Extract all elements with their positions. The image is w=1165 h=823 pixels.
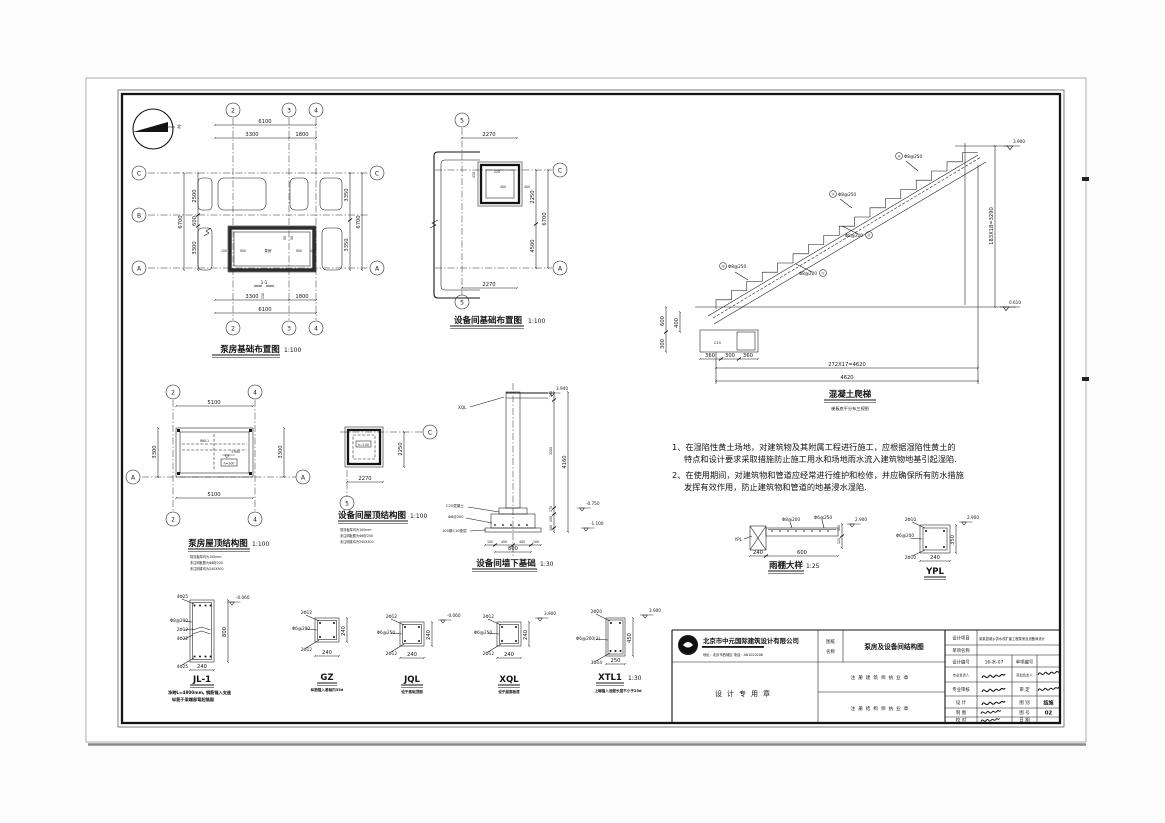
axis-label: B [137, 212, 141, 219]
level-label: -1.100 [590, 521, 604, 526]
rebar-label: 2Φ10 [905, 555, 917, 560]
dim-label: 4620 [840, 375, 853, 381]
field-label: 设计编号 [952, 659, 970, 666]
dim-label: 360 [743, 353, 753, 359]
slab-label: h=100 [358, 443, 369, 447]
level-label: 3.900 [1013, 139, 1025, 144]
dim-label: 150 [310, 249, 316, 253]
reg-stamp-label: 注册结构师执业章 [851, 705, 912, 712]
level-label: -0.750 [586, 501, 600, 506]
rebar-label: Φ6@250 [377, 630, 395, 635]
section-title: XTL1 [598, 673, 622, 683]
drawing-title: 雨棚大样 [769, 560, 804, 571]
dim-label: 272X17=4620 [828, 362, 866, 368]
dim-label: 6100 [258, 307, 271, 313]
material-label: Φ8@200 [448, 515, 464, 519]
note-line: 1、在湿陷性黄土场地，对建筑物及其附属工程进行施工，应根据湿陷性黄土的 [672, 442, 956, 452]
dim-label: 400 [674, 318, 680, 328]
dim-label: 300 [660, 339, 666, 349]
axis-label: 4 [253, 516, 257, 523]
material-label: 100厚C10垫层 [442, 528, 467, 533]
dim-label: 120 [494, 170, 500, 174]
dim-label: 600 [192, 216, 198, 226]
material-label: C20混凝土 [446, 503, 464, 508]
rebar-label: Φ6@200(2) [576, 636, 600, 641]
rebar-label: Φ8@200 [782, 517, 800, 522]
drawing-title: YPL [925, 567, 944, 577]
dim-label: 240 [426, 630, 432, 640]
level-label: -0.060 [447, 613, 461, 618]
registration-mark [1082, 377, 1089, 381]
axis-label: 2 [171, 516, 175, 523]
note-line: 未注明梁均为240X300 [340, 539, 373, 544]
company-subline: 地址：北京市西城区 电话：AN1020208 [703, 652, 763, 657]
dim-label: 2250 [530, 190, 536, 203]
note-line: 未注明板筋为Φ8@200 [340, 533, 373, 538]
dim-label: 240 [197, 664, 207, 670]
dim-label: 100 [837, 525, 841, 531]
level-label: 3.900 [544, 611, 556, 616]
dim-label: 400 [501, 540, 507, 544]
design-code: 16-水-07 [985, 659, 1004, 666]
field-label: 图 别 [1019, 699, 1029, 706]
dim-label: 240 [930, 555, 940, 561]
level-label: 3.940 [556, 386, 568, 391]
dim-label: 250 [611, 658, 621, 664]
field-label: 制 图 [956, 709, 967, 716]
dim-label: 150 [261, 293, 265, 299]
rebar-label: Φ8@250 [838, 192, 856, 197]
dim-label: 240 [322, 650, 332, 656]
dim-label: 2270 [482, 282, 495, 288]
rebar-label: 4Φ22 [177, 636, 189, 641]
dim-label: 240 [341, 626, 347, 636]
rebar-label: Φ8@250 [728, 264, 746, 269]
axis-label: C [558, 167, 562, 174]
slab-label: h=100 [224, 462, 235, 466]
callout-number: ① [821, 272, 824, 276]
dim-label: 450 [549, 516, 553, 522]
rebar-label: Φ8@250 [904, 154, 922, 159]
dim-label: 400 [519, 540, 525, 544]
field-label: 设计项目 [952, 635, 970, 642]
dim-label: 3300 [192, 241, 198, 254]
axis-label: 2 [231, 325, 235, 332]
drawing-subtitle: 梯板底平分布三视图 [831, 405, 869, 412]
field-label: 日 期 [1019, 718, 1030, 724]
dim-label: 3350 [344, 238, 350, 251]
drawing-title: 泵房屋顶结构图 [188, 538, 248, 549]
drawing-scale: 1:25 [806, 563, 820, 570]
axis-label: 2 [171, 389, 175, 396]
dim-label: 5100 [207, 492, 220, 498]
axis-label: 3 [287, 325, 291, 332]
dim-label: 100 [487, 540, 493, 544]
drawing-scale: 1:100 [410, 513, 427, 520]
dim-label: 360 [705, 353, 715, 359]
dim-label: 2500 [192, 189, 198, 202]
field-label: 单项编号 [1016, 659, 1034, 666]
dim-label: 400 [524, 185, 530, 189]
rebar-label: Φ6@200 [896, 533, 914, 538]
rebar-label: 2Φ12 [386, 614, 398, 619]
rebar-label: Φ6@200 [292, 626, 310, 631]
room-label: 泵房 [264, 248, 272, 253]
dim-label: 2270 [358, 476, 371, 482]
note-line: 现浇板厚均为100mm [190, 554, 221, 559]
axis-label: 5 [460, 299, 464, 306]
dim-label: 90 [283, 236, 287, 240]
level-label: 2.900 [855, 517, 867, 522]
seal-text: 设计专用章 [715, 689, 775, 698]
dim-label: 240 [407, 652, 417, 658]
reg-stamp-label: 注册建筑师执业章 [851, 674, 912, 681]
dim-label: 450 [627, 633, 633, 643]
dim-label: 3350 [344, 188, 350, 201]
drawing-scale: 1:100 [252, 541, 269, 548]
rebar-label: Φ6@250 [474, 630, 492, 635]
dim-label: 3300 [278, 445, 284, 458]
dim-label: 240 [753, 550, 763, 556]
dim-label: 240 [549, 391, 553, 397]
material-label: C15 [714, 341, 721, 345]
registration-mark [1082, 177, 1089, 181]
dim-label: 4500 [530, 239, 536, 252]
dim-label: 2270 [482, 132, 495, 138]
note-line: 发挥有效作用，防止建筑物和管道的地基浸水湿陷. [684, 482, 867, 492]
company-name: 北京市中元国际建筑设计有限公司 [703, 636, 799, 645]
dim-label: 5100 [207, 400, 220, 406]
dim-label: 900 [240, 249, 246, 253]
sheet-number: 02 [1045, 711, 1053, 717]
note-line: 现浇板厚均为100mm [340, 527, 371, 532]
callout-number: ② [867, 234, 870, 238]
dim-label: 6700 [356, 215, 362, 228]
dim-label: 6100 [258, 119, 271, 125]
dim-label: 120 [837, 538, 841, 544]
note-line: 未注明板筋为Φ8@200 [190, 560, 223, 565]
beam-label: WKL1 [200, 439, 209, 443]
note-line: 特点和设计要求采取措施防止施工用水和场地雨水流入建筑物地基引起湿陷. [684, 454, 957, 464]
section-title: JL-1 [192, 675, 211, 685]
axis-label: 4 [314, 325, 318, 332]
rebar-label: Φ8@200 [170, 618, 188, 623]
axis-label: 4 [314, 107, 318, 114]
dim-label: 800 [222, 627, 228, 637]
section-note: 纵筋于梁端部弯起锚固 [172, 696, 214, 703]
section-scale: 1:30 [628, 675, 642, 682]
dim-label: 1800 [295, 294, 308, 300]
dim-label: 50 [290, 236, 294, 240]
dim-label: 430 [472, 172, 476, 178]
rebar-label: 2Φ12 [483, 614, 495, 619]
drawing-title: 设备间基础布置图 [454, 315, 522, 326]
drawing-title: 泵房基础布置图 [220, 344, 280, 355]
level-label: 3.900 [231, 450, 240, 454]
field-label: 项目负责人 [1016, 673, 1033, 678]
beam-label: XQL [458, 405, 467, 410]
note-line: 未注明梁均为240X300 [190, 566, 223, 571]
dim-label: 170 [549, 506, 553, 512]
sheet-type: 结施 [1043, 700, 1053, 707]
drawing-title: 设备间屋顶结构图 [338, 510, 406, 521]
dim-label: 100 [533, 540, 539, 544]
dim-label: 600 [797, 550, 807, 556]
drawing-name: 泵房及设备间结构图 [864, 642, 924, 651]
dim-label: 240 [504, 652, 514, 658]
level-label: 3.900 [649, 608, 661, 613]
dim-label: 350 [950, 535, 956, 545]
axis-label: 2 [231, 107, 235, 114]
dim-label: 3300 [245, 132, 258, 138]
section-subtitle: 设于基础顶面 [401, 689, 423, 694]
rebar-label: 4Φ25 [177, 594, 189, 599]
section-mark: 1-1 [261, 280, 268, 285]
section-note: 净跨L=4800mm, 钢筋锚入支座 [168, 689, 232, 696]
callout-number: ③ [831, 193, 834, 197]
dim-label: 6700 [542, 212, 548, 225]
section-title: GZ [320, 673, 333, 683]
dim-label: 2250 [398, 442, 404, 455]
dim-label: 1800 [295, 132, 308, 138]
section-title: JQL [403, 675, 420, 685]
dim-label: 240 [523, 630, 529, 640]
dim-label: 900 [296, 249, 302, 253]
field-label: 图 号 [1019, 710, 1030, 716]
callout-number: ④ [897, 155, 900, 159]
axis-label: 3 [287, 107, 291, 114]
dim-label: 3200 [549, 447, 553, 455]
level-label: 2.900 [967, 515, 979, 520]
dim-label: 150 [221, 249, 227, 253]
rebar-label: 2Φ10 [905, 517, 917, 522]
note-line: 2、在使用期间，对建筑物和管道应经常进行维护和检修，并应确保所有防水措施 [672, 470, 964, 480]
beam-tag: YPL [734, 537, 743, 542]
drawing-scale: 1:30 [540, 561, 554, 568]
drawing-viewer: 北 2 3 4 2 3 4 C B A C A 泵房 150 900 900 1… [0, 0, 1165, 823]
section-title: XQL [499, 675, 519, 685]
dim-label: 3300 [245, 294, 258, 300]
field-label: 图纸 [826, 638, 835, 645]
level-label: 0.610 [1009, 300, 1021, 305]
level-label: -0.060 [236, 595, 250, 600]
axis-label: C [137, 170, 141, 177]
drawing-title: 设备间墙下基础 [476, 558, 536, 569]
dim-label: 4160 [562, 455, 568, 468]
rebar-label: Φ6@250 [814, 515, 832, 520]
section-note: 上端锚入池壁长度不小于25d [594, 688, 642, 693]
drawing-scale: 1:100 [528, 318, 545, 325]
rebar-label: 2Φ20 [591, 609, 603, 614]
field-label: 名称 [826, 648, 835, 655]
axis-label: 5 [460, 117, 464, 124]
project-name: 某某县城乡供水改扩建工程泵房及设备间设计 [979, 636, 1046, 641]
dim-label: 300 [725, 353, 735, 359]
field-label: 单项名称 [952, 647, 970, 654]
field-label: 校 对 [956, 717, 967, 724]
dim-label: 100 [549, 525, 553, 531]
dim-label: 3300 [152, 445, 158, 458]
field-label: 专业负责人 [953, 673, 970, 678]
rebar-label: 2Φ12 [301, 610, 313, 615]
field-label: 专业审核 [952, 686, 970, 693]
drawing-scale: 1:100 [284, 347, 301, 354]
axis-label: 4 [253, 389, 257, 396]
rebar-label: Φ8@200 [845, 233, 863, 238]
dim-label: 800 [508, 546, 518, 552]
section-subtitle: 设于屋面板底 [498, 689, 520, 694]
dim-label: 400 [500, 185, 506, 189]
axis-label: C [428, 429, 432, 436]
section-subtitle: 纵筋锚入基础内35d [311, 687, 344, 692]
dim-label: 183X18=3290 [989, 207, 995, 245]
axis-label: C [375, 170, 379, 177]
dim-label: 6700 [178, 215, 184, 228]
field-label: 审 定 [1019, 686, 1030, 693]
field-label: 设 计 [956, 699, 967, 706]
dim-label: 600 [660, 316, 666, 326]
rebar-label: Φ8@200 [799, 271, 817, 276]
axis-label: 5 [345, 500, 349, 507]
drawing-title: 混凝土爬梯 [829, 389, 872, 400]
